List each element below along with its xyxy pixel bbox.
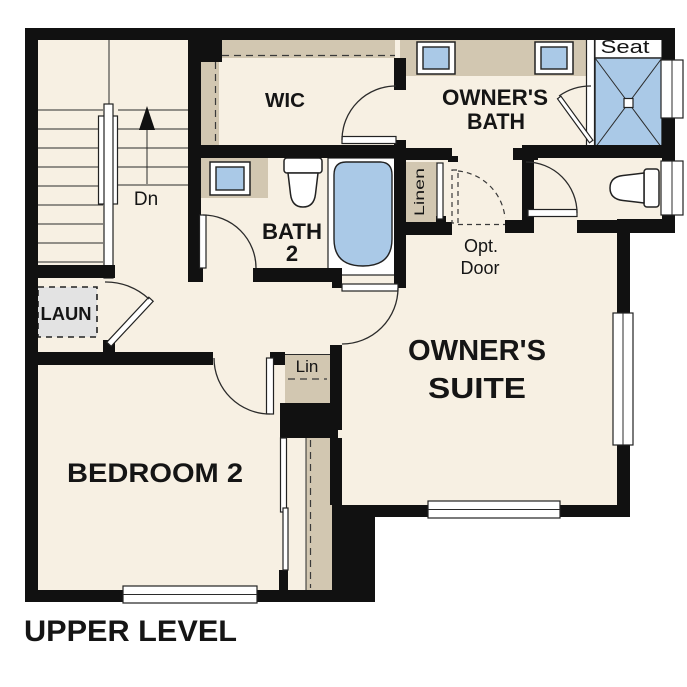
lin-label: Lin: [296, 357, 319, 376]
bedroom2-window: [123, 586, 257, 603]
wic-label: WIC: [265, 90, 305, 112]
bath2-sink: [210, 162, 250, 195]
floor-plan-page: Dn: [0, 0, 687, 687]
owners-bath-sink-left: [417, 42, 455, 74]
bedroom2-label: BEDROOM 2: [67, 458, 243, 488]
owners-suite-bottom-window: [428, 501, 560, 518]
plan-title: UPPER LEVEL: [24, 615, 237, 648]
owners-bath-sink-right: [535, 42, 573, 74]
stair-railing: [104, 104, 113, 278]
opt-door-label-2: Door: [460, 258, 499, 278]
bathtub: [334, 162, 392, 266]
shower-window: [661, 60, 683, 118]
shower-glass-panel: [587, 37, 595, 148]
shower: [595, 58, 662, 148]
wic-shelf-left: [201, 62, 219, 146]
shower-drain: [624, 99, 633, 108]
owners-suite-label-1: OWNER'S: [408, 335, 546, 367]
bath2-label-2: 2: [286, 241, 298, 266]
floor-plan: Dn: [0, 0, 687, 687]
laundry-label: LAUN: [41, 304, 92, 324]
owners-suite-right-window: [613, 313, 633, 445]
stairs-dn-label: Dn: [134, 189, 158, 210]
owners-bath-label-1: OWNER'S: [442, 85, 548, 110]
wc-window: [661, 161, 683, 215]
linen-label: Linen: [411, 168, 427, 216]
opt-door-label-1: Opt.: [464, 236, 498, 256]
owners-bath-label-2: BATH: [467, 109, 525, 134]
owners-suite-label-2: SUITE: [428, 373, 526, 405]
seat-label: Seat: [601, 37, 650, 57]
linen-door: [437, 163, 443, 219]
